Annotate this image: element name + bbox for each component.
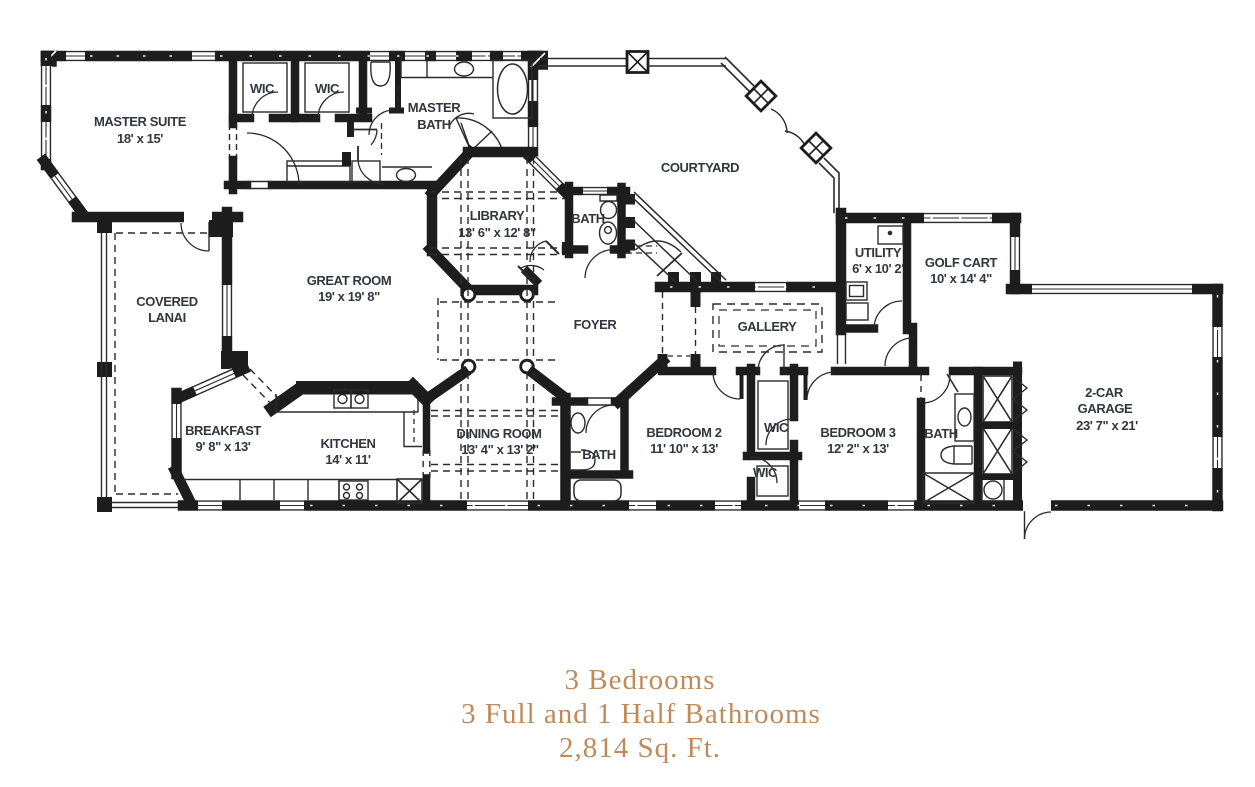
svg-text:COVERED: COVERED	[136, 294, 198, 309]
svg-text:23' 7" x 21': 23' 7" x 21'	[1076, 418, 1138, 433]
svg-text:19' x 19' 8": 19' x 19' 8"	[318, 289, 380, 304]
svg-text:MASTER: MASTER	[408, 100, 462, 115]
svg-text:FOYER: FOYER	[574, 317, 618, 332]
svg-text:GOLF CART: GOLF CART	[925, 255, 998, 270]
svg-text:BEDROOM 2: BEDROOM 2	[646, 425, 721, 440]
svg-text:13' 6" x 12' 8": 13' 6" x 12' 8"	[458, 225, 536, 240]
svg-text:DINING ROOM: DINING ROOM	[456, 426, 541, 441]
svg-text:UTILITY: UTILITY	[855, 245, 902, 260]
svg-text:2,814 Sq. Ft.: 2,814 Sq. Ft.	[559, 732, 721, 764]
svg-text:LIBRARY: LIBRARY	[470, 208, 525, 223]
svg-text:BATH: BATH	[571, 211, 605, 226]
svg-text:WIC: WIC	[753, 465, 778, 480]
svg-text:BATH: BATH	[582, 447, 616, 462]
svg-text:GREAT ROOM: GREAT ROOM	[307, 273, 392, 288]
svg-text:13' 4" x 13' 2": 13' 4" x 13' 2"	[461, 442, 539, 457]
svg-text:BEDROOM 3: BEDROOM 3	[820, 425, 895, 440]
svg-text:LANAI: LANAI	[148, 310, 186, 325]
svg-text:KITCHEN: KITCHEN	[321, 436, 376, 451]
svg-text:14' x 11': 14' x 11'	[325, 452, 371, 467]
svg-text:18' x 15': 18' x 15'	[117, 131, 163, 146]
svg-text:2-CAR: 2-CAR	[1085, 385, 1124, 400]
svg-text:BREAKFAST: BREAKFAST	[185, 423, 261, 438]
svg-text:WIC: WIC	[250, 81, 275, 96]
svg-text:COURTYARD: COURTYARD	[661, 160, 739, 175]
svg-text:BATH: BATH	[924, 426, 958, 441]
svg-text:6' x 10' 2': 6' x 10' 2'	[852, 261, 904, 276]
svg-text:WIC: WIC	[764, 420, 789, 435]
svg-text:WIC: WIC	[315, 81, 340, 96]
svg-text:BATH: BATH	[417, 117, 451, 132]
svg-text:12' 2" x 13': 12' 2" x 13'	[827, 441, 889, 456]
svg-text:10' x 14' 4": 10' x 14' 4"	[930, 271, 992, 286]
svg-text:GALLERY: GALLERY	[738, 319, 798, 334]
svg-text:3 Full and 1 Half Bathrooms: 3 Full and 1 Half Bathrooms	[461, 698, 821, 730]
svg-text:MASTER SUITE: MASTER SUITE	[94, 114, 187, 129]
svg-text:3 Bedrooms: 3 Bedrooms	[565, 664, 716, 696]
svg-text:GARAGE: GARAGE	[1078, 401, 1133, 416]
svg-text:11' 10" x 13': 11' 10" x 13'	[650, 441, 718, 456]
svg-text:9' 8" x 13': 9' 8" x 13'	[196, 439, 251, 454]
